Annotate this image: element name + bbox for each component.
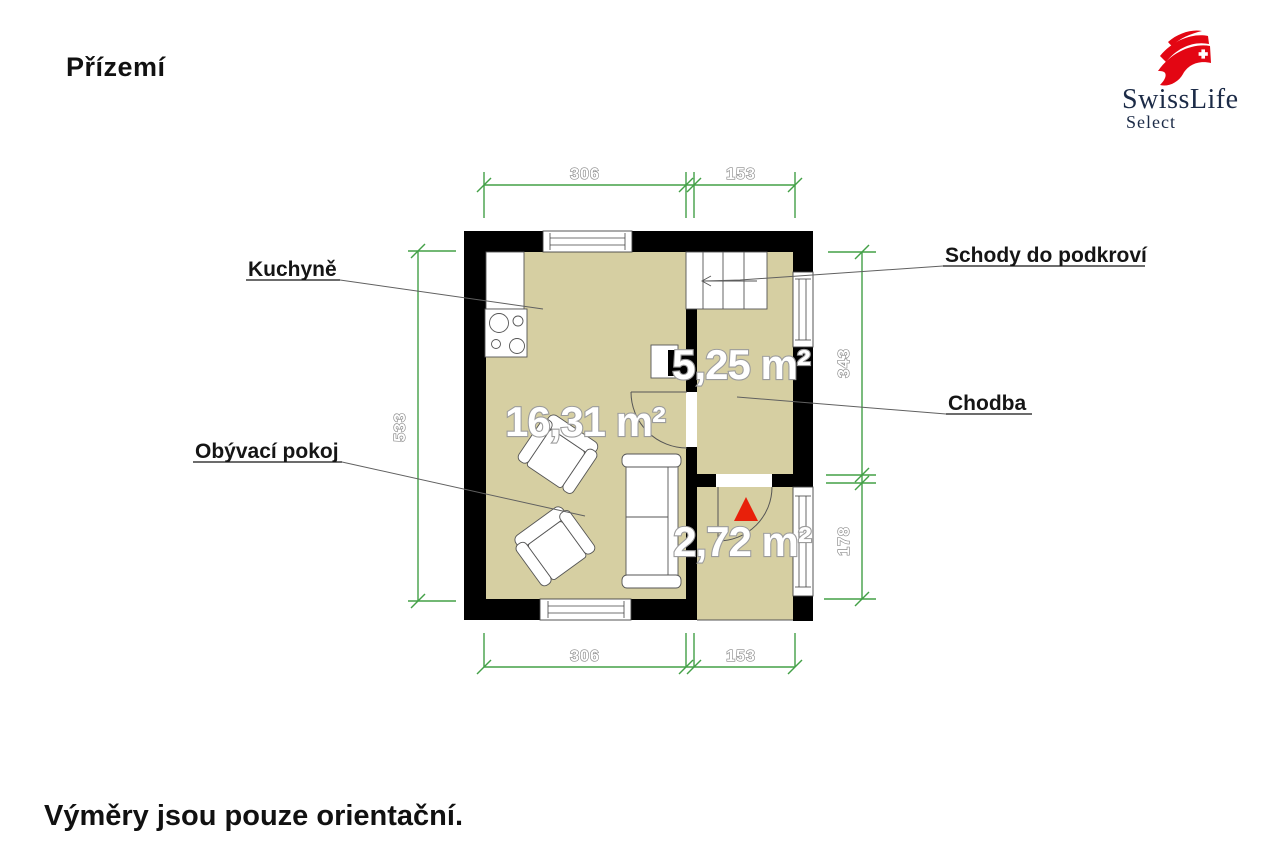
living-room-label: Obývací pokoj [195, 440, 339, 463]
floor-plan-drawing: 306 153 306 153 533 343 178 16,31 m² 5,2… [180, 140, 1160, 700]
floor-plan-page: Přízemí SwissLife Select [0, 0, 1280, 853]
kitchen-label: Kuchyně [248, 258, 337, 281]
dim-top-left: 306 [570, 166, 600, 183]
area-hallway: 5,25 m² [672, 341, 811, 388]
stairs-label: Schody do podkroví [945, 244, 1148, 267]
swisslife-logo: SwissLife Select [1108, 24, 1268, 139]
disclaimer-note: Výměry jsou pouze orientační. [44, 800, 463, 833]
dim-right-upper: 343 [836, 348, 853, 378]
dim-top-right: 153 [726, 166, 756, 183]
swisslife-logo-icon [1150, 28, 1214, 88]
dim-right-lower: 178 [836, 526, 853, 556]
dim-left-side: 533 [392, 412, 409, 442]
hallway-window [793, 272, 813, 347]
living-room-window [540, 599, 631, 620]
area-entry: 2,72 m² [673, 518, 812, 565]
hallway-label: Chodba [948, 392, 1026, 415]
kitchen-counter [485, 252, 527, 357]
kitchen-window [543, 231, 632, 252]
page-title: Přízemí [66, 52, 166, 83]
logo-product-text: Select [1126, 112, 1176, 133]
dim-bottom-left: 306 [570, 648, 600, 665]
area-living-room: 16,31 m² [505, 398, 666, 445]
dim-bottom-right: 153 [726, 648, 756, 665]
